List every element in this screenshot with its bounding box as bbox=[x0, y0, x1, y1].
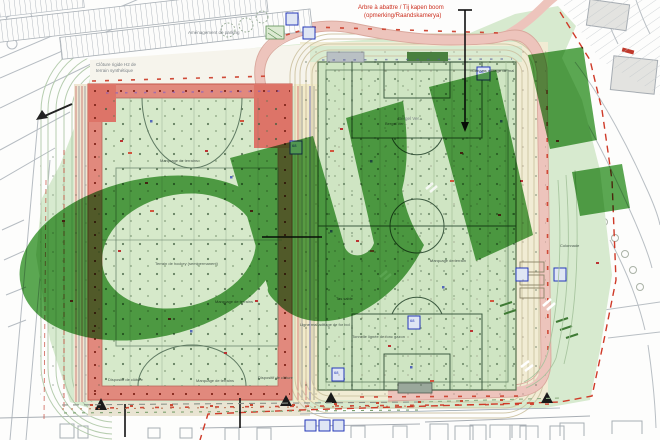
svg-text:(opmerking/Raandskamerya): (opmerking/Raandskamerya) bbox=[364, 13, 441, 19]
svg-text:Clôture rigide H2 de: Clôture rigide H2 de bbox=[96, 62, 137, 67]
svg-text:Dispositif de clôture: Dispositif de clôture bbox=[108, 377, 144, 382]
svg-text:Marquage de terrains: Marquage de terrains bbox=[160, 158, 198, 163]
svg-text:Terrain de hockey (semipermane: Terrain de hockey (semipermanent) bbox=[155, 261, 219, 266]
svg-text:Marquage de terrains: Marquage de terrains bbox=[196, 378, 234, 383]
svg-text:Arbre à abattre / Tij kapen bo: Arbre à abattre / Tij kapen boom bbox=[358, 5, 444, 11]
svg-text:Aménagement de parking: Aménagement de parking bbox=[188, 30, 240, 35]
svg-text:Tonnelle lignée de fonc gazon: Tonnelle lignée de fonc gazon bbox=[352, 334, 405, 339]
svg-text:Colonnade: Colonnade bbox=[560, 243, 580, 248]
svg-text:terrain synthétique: terrain synthétique bbox=[96, 68, 134, 73]
svg-text:Ligne mal adttage de for bol: Ligne mal adttage de for bol bbox=[300, 322, 350, 327]
svg-text:Dispositif de clôture: Dispositif de clôture bbox=[258, 375, 294, 380]
svg-text:Marquage de terrain: Marquage de terrain bbox=[430, 258, 466, 263]
